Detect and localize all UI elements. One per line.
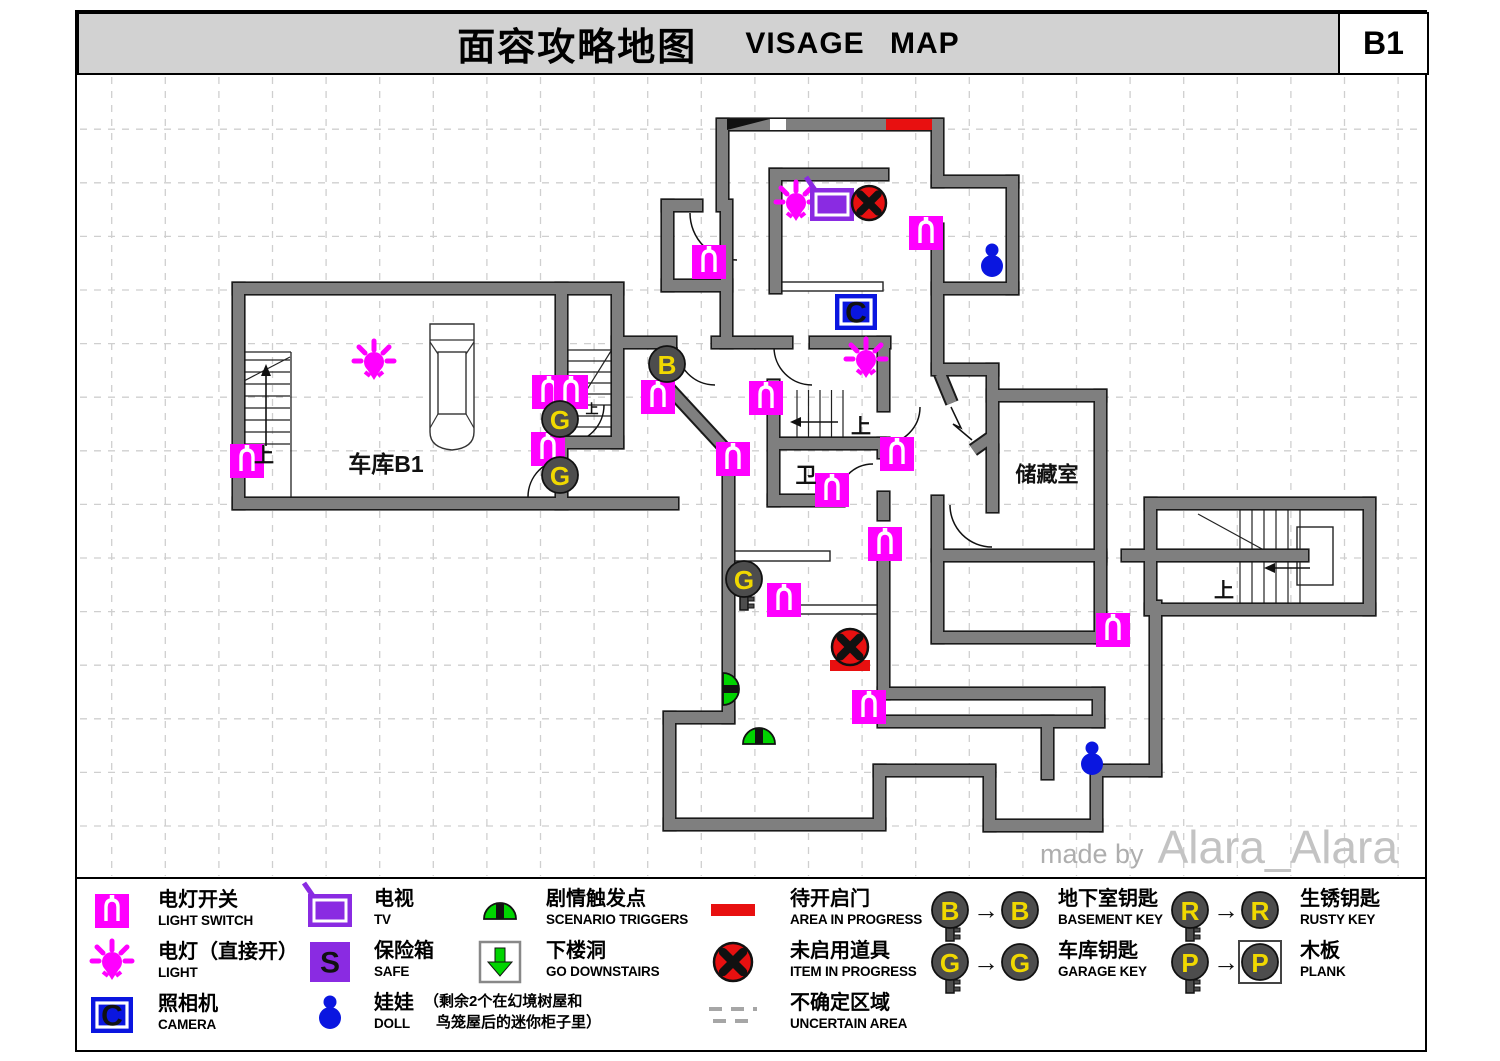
- key-icon: B: [932, 892, 968, 941]
- legend-label-cn: 下楼洞: [546, 941, 659, 961]
- legend-item-red-bar: 待开启门AREA IN PROGRESS: [790, 889, 922, 927]
- legend-item-safe: 保险箱SAFE: [374, 941, 434, 979]
- light-switch-icon: [868, 527, 902, 561]
- floor-badge: B1: [1338, 12, 1429, 75]
- map-text: 上: [254, 444, 274, 467]
- legend-label-en: LIGHT: [158, 966, 298, 980]
- key-icon: R: [1172, 892, 1208, 941]
- legend-label-en: DOLL: [374, 1017, 414, 1031]
- legend-label-en: LIGHT SWITCH: [158, 914, 253, 928]
- map-text: R: [1251, 896, 1270, 926]
- page: 面容攻略地图 VISAGE MAP B1 CBGGG车库B1卫储藏室上上上上 m…: [0, 0, 1500, 1061]
- light-switch-icon: [692, 245, 726, 279]
- item-in-progress-icon: [852, 186, 886, 220]
- shelf: [780, 282, 883, 291]
- map-text: B: [1011, 896, 1030, 926]
- floorplan-map: CBGGG车库B1卫储藏室上上上上: [77, 75, 1425, 878]
- legend-item-doll: 娃娃DOLL: [374, 993, 414, 1031]
- legend-label-en: GARAGE KEY: [1058, 965, 1147, 979]
- scenario-trigger-icon: [723, 673, 739, 705]
- map-text: →: [973, 947, 999, 977]
- key-icon: B: [649, 346, 685, 382]
- map-text: G: [940, 948, 960, 978]
- doll-icon: [319, 996, 341, 1030]
- legend-label-cn: 电灯（直接开）: [158, 942, 298, 962]
- scenario-trigger-icon: [484, 903, 516, 919]
- legend-label-cn: 地下室钥匙: [1058, 889, 1163, 909]
- doll-note-line1: （剩余2个在幻境树屋和: [424, 991, 601, 1012]
- go-downstairs-icon: [480, 942, 520, 982]
- legend-label-cn: 娃娃: [374, 993, 414, 1013]
- shelf: [728, 551, 830, 561]
- uncertain-area-icon: [709, 1009, 757, 1021]
- map-text: G: [1010, 948, 1030, 978]
- map-text: 上: [851, 415, 871, 438]
- legend-label-cn: 剧情触发点: [546, 889, 688, 909]
- map-text: →: [973, 895, 999, 925]
- legend-item-uncertain: 不确定区域UNCERTAIN AREA: [790, 993, 907, 1031]
- legend-label-en: GO DOWNSTAIRS: [546, 965, 659, 979]
- map-text: G: [734, 565, 754, 595]
- legend-label-cn: 照相机: [158, 994, 218, 1014]
- legend-label-en: ITEM IN PROGRESS: [790, 965, 917, 979]
- legend-label-en: BASEMENT KEY: [1058, 913, 1163, 927]
- map-text: B: [658, 350, 677, 380]
- legend-label-cn: 待开启门: [790, 889, 922, 909]
- legend-item-downstairs: 下楼洞GO DOWNSTAIRS: [546, 941, 659, 979]
- page-title-cn: 面容攻略地图: [457, 16, 697, 71]
- light-switch-icon: [767, 583, 801, 617]
- map-text: 上: [1214, 579, 1234, 602]
- map-text: G: [550, 405, 570, 435]
- legend-label-en: SAFE: [374, 965, 434, 979]
- page-title-en: VISAGE MAP: [745, 27, 959, 61]
- legend-label-en: PLANK: [1300, 965, 1346, 979]
- light-icon: [92, 941, 132, 980]
- key-icon: G: [1002, 944, 1038, 980]
- legend-item-tv: 电视TV: [374, 889, 414, 927]
- light-switch-icon: [909, 216, 943, 250]
- map-text: 卫: [796, 465, 817, 488]
- header: 面容攻略地图 VISAGE MAP: [77, 12, 1340, 75]
- key-icon: R: [1242, 892, 1278, 928]
- map-text: 车库B1: [348, 451, 424, 477]
- watermark: made by Alara_Alara: [1040, 820, 1398, 874]
- legend-item-key: 木板PLANK: [1300, 941, 1346, 979]
- legend-label-cn: 生锈钥匙: [1300, 889, 1380, 909]
- area-in-progress-marker: [886, 119, 932, 130]
- light-switch-icon: [852, 690, 886, 724]
- doll-icon: [1081, 742, 1103, 776]
- legend-item-trigger: 剧情触发点SCENARIO TRIGGERS: [546, 889, 688, 927]
- item-in-progress-icon: [714, 943, 752, 981]
- light-icon: [354, 341, 394, 380]
- legend-label-en: AREA IN PROGRESS: [790, 913, 922, 927]
- legend-label-cn: 车库钥匙: [1058, 941, 1147, 961]
- map-text: 上: [585, 402, 598, 417]
- map-text: S: [320, 947, 340, 980]
- item-in-progress-icon: [832, 629, 868, 665]
- key-icon: B: [1002, 892, 1038, 928]
- key-icon: G: [932, 944, 968, 993]
- key-icon: P: [1239, 941, 1281, 983]
- tv-icon: [806, 177, 854, 221]
- light-switch-icon: [95, 894, 129, 928]
- map-text: C: [845, 297, 867, 330]
- map-text: R: [1181, 896, 1200, 926]
- legend-label-cn: 保险箱: [374, 941, 434, 961]
- legend-item-key: 生锈钥匙RUSTY KEY: [1300, 889, 1380, 927]
- map-text: B: [941, 896, 960, 926]
- light-switch-icon: [1096, 613, 1130, 647]
- legend-label-cn: 未启用道具: [790, 941, 917, 961]
- legend-label-cn: 木板: [1300, 941, 1346, 961]
- legend-item-key: 地下室钥匙BASEMENT KEY: [1058, 889, 1163, 927]
- legend-label-en: TV: [374, 913, 414, 927]
- safe-icon: S: [310, 942, 350, 982]
- legend-label-cn: 电视: [374, 889, 414, 909]
- open-doorway: [951, 407, 972, 440]
- legend-label-cn: 电灯开关: [158, 890, 253, 910]
- doll-note: （剩余2个在幻境树屋和鸟笼屋后的迷你柜子里）: [424, 991, 601, 1033]
- map-text: 储藏室: [1016, 463, 1079, 487]
- camera-icon: C: [91, 997, 133, 1033]
- scenario-trigger-icon: [743, 728, 775, 744]
- watermark-name: Alara_Alara: [1158, 820, 1398, 874]
- legend-label-en: CAMERA: [158, 1018, 218, 1032]
- legend-label-en: SCENARIO TRIGGERS: [546, 913, 688, 927]
- legend-item-light-switch: 电灯开关LIGHT SWITCH: [158, 890, 253, 928]
- legend-item-light: 电灯（直接开）LIGHT: [158, 942, 298, 980]
- area-in-progress-icon: [711, 904, 755, 916]
- light-switch-icon: [641, 380, 675, 414]
- legend-label-en: RUSTY KEY: [1300, 913, 1380, 927]
- legend-label-en: UNCERTAIN AREA: [790, 1017, 907, 1031]
- camera-icon: C: [835, 294, 877, 330]
- key-icon: P: [1172, 944, 1208, 993]
- tv-icon: [304, 883, 352, 927]
- map-text: →: [1213, 895, 1239, 925]
- map-text: P: [1251, 948, 1268, 978]
- light-switch-icon: [716, 442, 750, 476]
- car-outline: [430, 324, 474, 450]
- watermark-prefix: made by: [1040, 839, 1144, 870]
- map-text: C: [101, 1000, 123, 1033]
- key-icon: G: [542, 401, 578, 437]
- legend-label-cn: 不确定区域: [790, 993, 907, 1013]
- legend-item-key: 车库钥匙GARAGE KEY: [1058, 941, 1147, 979]
- doll-icon: [981, 244, 1003, 278]
- light-switch-icon: [880, 437, 914, 471]
- doll-note-line2: 鸟笼屋后的迷你柜子里）: [436, 1012, 601, 1033]
- legend-item-camera: 照相机CAMERA: [158, 994, 218, 1032]
- legend-item-red-x: 未启用道具ITEM IN PROGRESS: [790, 941, 917, 979]
- light-switch-icon: [749, 381, 783, 415]
- map-text: G: [550, 461, 570, 491]
- key-icon: G: [542, 457, 578, 493]
- map-text: P: [1181, 948, 1198, 978]
- light-switch-icon: [815, 473, 849, 507]
- map-text: →: [1213, 947, 1239, 977]
